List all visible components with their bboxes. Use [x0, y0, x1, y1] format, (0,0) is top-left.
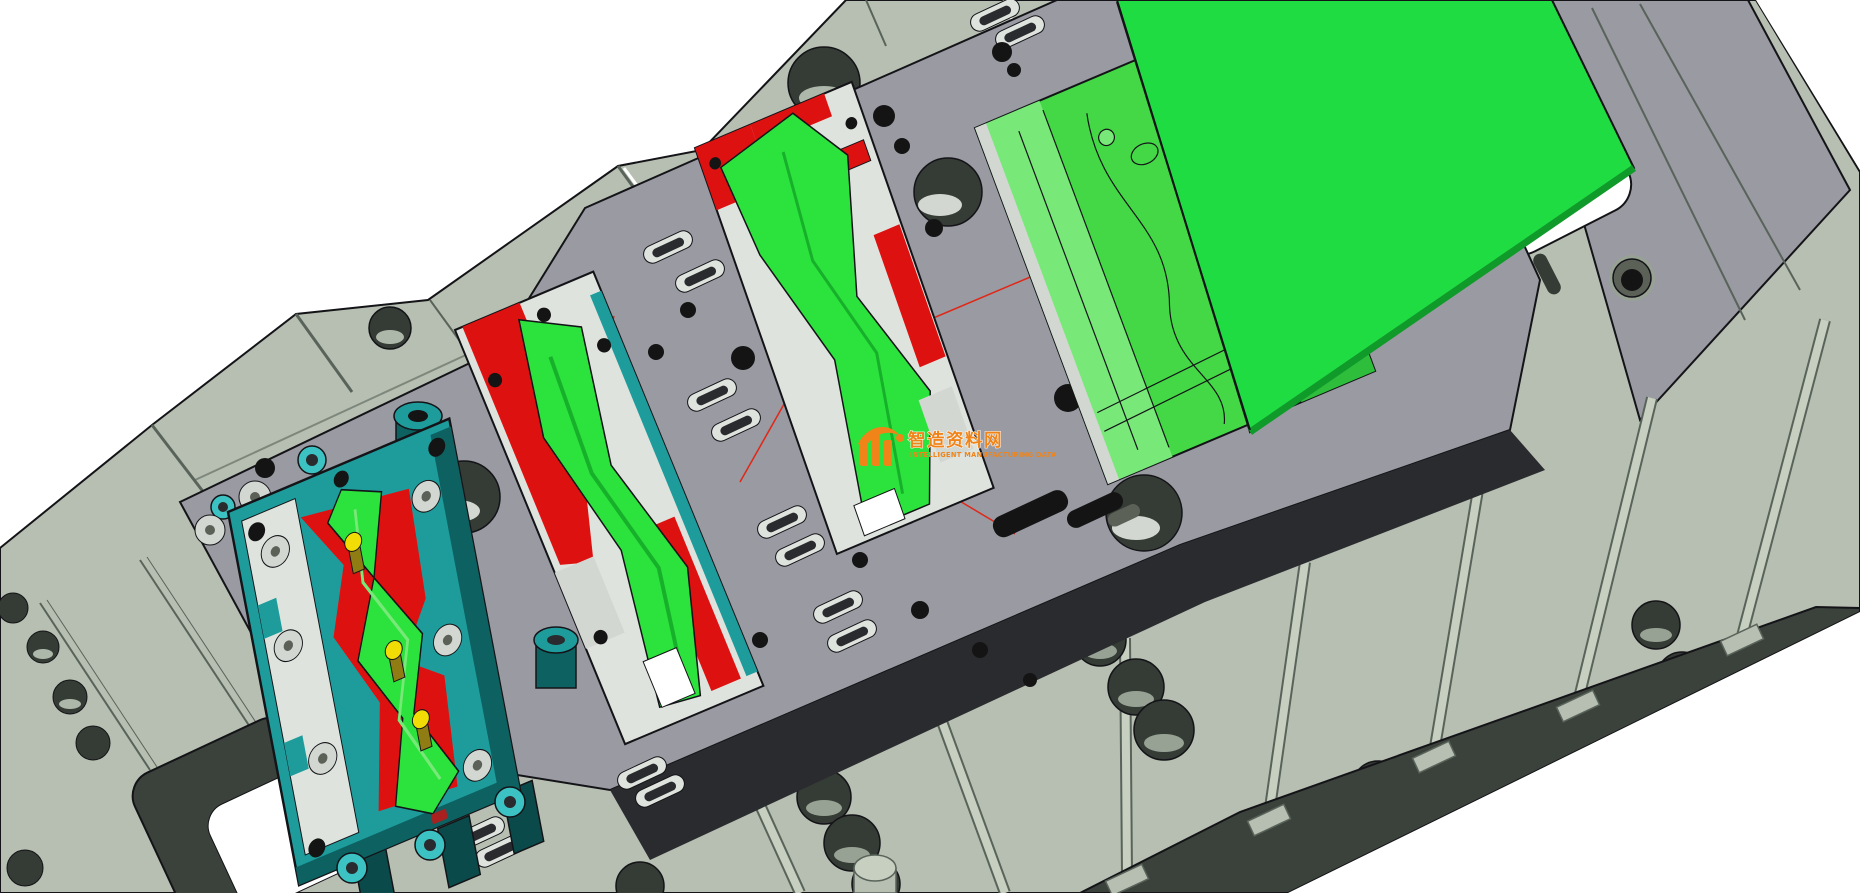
cad-stage: 智造资料网 INTELLIGENT MANUFACTURING DATA — [0, 0, 1860, 893]
guide-bushing — [534, 627, 578, 688]
cad-viewport[interactable]: 智造资料网 INTELLIGENT MANUFACTURING DATA — [0, 0, 1860, 893]
guide-post — [854, 855, 896, 893]
watermark-brand-text: 智造资料网 — [908, 430, 1003, 451]
clamp-hole — [369, 307, 411, 349]
watermark-subtitle-text: INTELLIGENT MANUFACTURING DATA — [910, 451, 1057, 459]
